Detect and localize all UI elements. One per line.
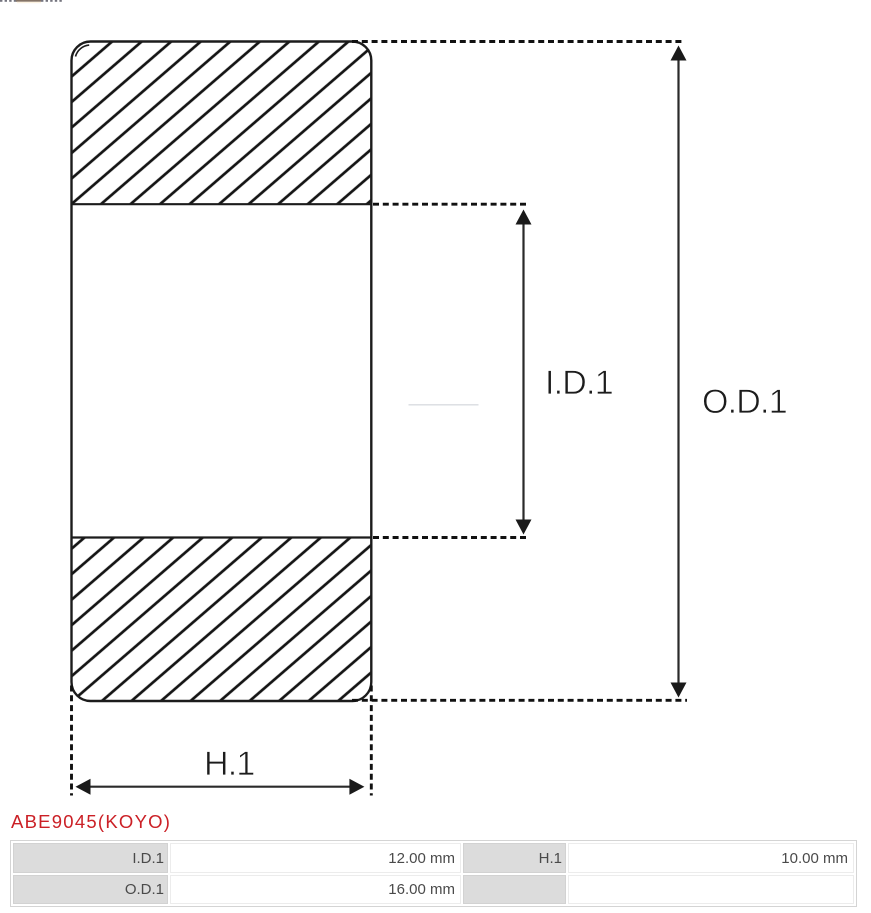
svg-text:O.D.1: O.D.1 <box>702 383 787 421</box>
svg-text:H.1: H.1 <box>204 745 255 783</box>
svg-text:I.D.1: I.D.1 <box>545 364 613 402</box>
